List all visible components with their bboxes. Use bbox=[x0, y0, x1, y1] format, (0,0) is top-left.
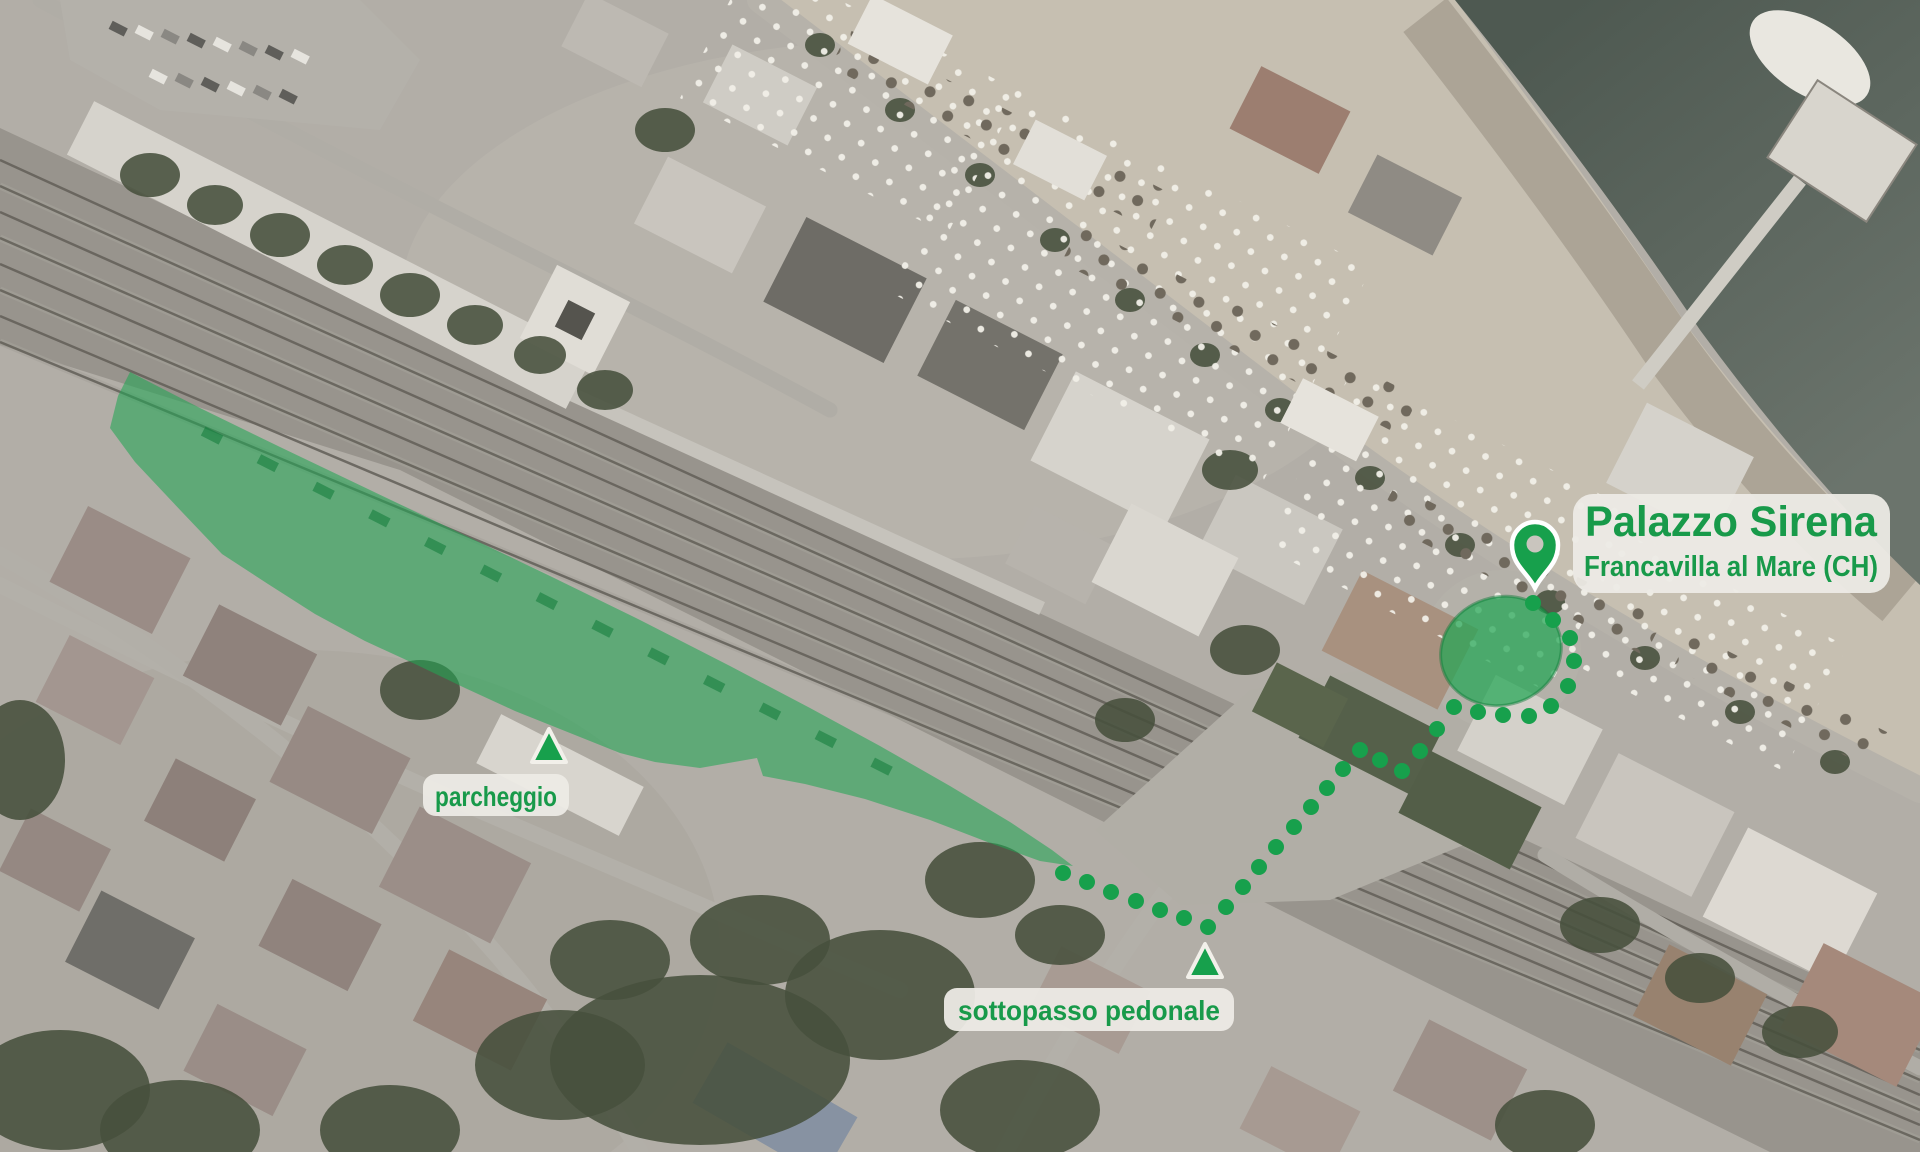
parking-label: parcheggio bbox=[435, 781, 557, 812]
destination-title: Palazzo Sirena bbox=[1585, 498, 1878, 546]
destination-callout: Palazzo Sirena Francavilla al Mare (CH) bbox=[1573, 494, 1890, 593]
map-canvas: parcheggio sottopasso pedonale Palazzo S… bbox=[0, 0, 1920, 1152]
destination-subtitle: Francavilla al Mare (CH) bbox=[1584, 551, 1878, 583]
underpass-callout: sottopasso pedonale bbox=[944, 988, 1234, 1031]
parking-callout: parcheggio bbox=[423, 774, 569, 816]
aerial-map: parcheggio sottopasso pedonale Palazzo S… bbox=[0, 0, 1920, 1152]
underpass-label: sottopasso pedonale bbox=[958, 995, 1220, 1026]
